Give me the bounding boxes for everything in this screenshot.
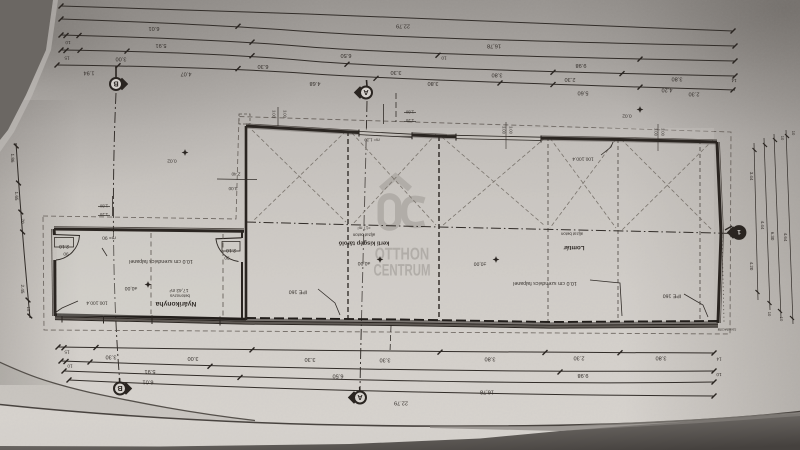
svg-text:kerti kisgép tároló: kerti kisgép tároló [338,240,389,247]
svg-text:10: 10 [67,364,73,369]
svg-text:10: 10 [767,312,772,317]
svg-text:15: 15 [64,350,70,355]
svg-text:4.20: 4.20 [749,262,754,271]
svg-text:1.20: 1.20 [99,212,108,217]
svg-text:3.80: 3.80 [656,355,667,361]
svg-text:1: 1 [737,228,741,235]
svg-text:100.100.4: 100.100.4 [572,156,594,162]
svg-text:2.40: 2.40 [231,172,240,177]
svg-text:Nyárikonyha: Nyárikonyha [155,300,196,307]
svg-text:2.10: 2.10 [59,243,69,249]
svg-text:6.50: 6.50 [333,373,344,379]
svg-text:A: A [363,88,368,97]
svg-text:10: 10 [791,131,796,136]
svg-text:IPE 160: IPE 160 [663,293,682,299]
svg-text:14: 14 [716,357,722,362]
svg-text:2.45: 2.45 [20,285,25,294]
svg-text:10: 10 [779,317,784,322]
svg-text:2.10: 2.10 [226,247,236,253]
svg-text:Lomtár: Lomtár [563,244,585,251]
svg-text:0.02: 0.02 [167,158,177,164]
svg-text:3.30: 3.30 [391,69,402,75]
svg-text:1.80: 1.80 [405,110,414,115]
svg-text:90: 90 [63,252,69,257]
svg-text:0.02: 0.02 [622,113,632,119]
svg-text:B: B [117,384,122,393]
svg-text:3.30: 3.30 [106,354,117,360]
svg-text:3.00: 3.00 [116,56,127,62]
svg-text:10: 10 [65,40,71,45]
svg-text:3.00: 3.00 [188,355,199,361]
svg-text:3.80: 3.80 [485,356,496,362]
svg-text:9.98: 9.98 [576,62,587,68]
svg-text:aljzat beton: aljzat beton [560,232,583,237]
svg-text:3.44: 3.44 [749,172,754,181]
svg-text:5.91: 5.91 [145,368,156,374]
svg-text:3.00: 3.00 [283,110,288,119]
svg-text:6.30: 6.30 [770,232,775,241]
svg-text:6.30: 6.30 [258,63,269,69]
svg-text:3.30: 3.30 [305,356,316,362]
svg-text:≈17 m²: ≈17 m² [357,226,371,231]
svg-text:3.00: 3.00 [272,110,277,119]
svg-text:1.94: 1.94 [84,70,95,76]
svg-text:22.79: 22.79 [396,23,410,29]
svg-text:5.60: 5.60 [578,90,589,96]
svg-text:14: 14 [731,78,737,83]
svg-text:10: 10 [441,56,447,61]
svg-text:100.100.4: 100.100.4 [86,300,108,306]
svg-text:16,78: 16,78 [480,389,494,395]
svg-text:10: 10 [716,372,722,377]
svg-text:±0,00: ±0,00 [474,261,487,267]
svg-text:aljzat beton: aljzat beton [352,233,375,238]
svg-text:4.20: 4.20 [662,87,673,93]
svg-text:10.0 cm szendvics falpanel: 10.0 cm szendvics falpanel [129,258,193,264]
svg-text:±0,00: ±0,00 [358,260,371,266]
svg-text:6.01: 6.01 [149,25,160,31]
svg-text:1.80: 1.80 [99,204,108,209]
svg-text:1.65: 1.65 [14,192,19,201]
svg-text:4.64: 4.64 [783,233,788,242]
svg-text:±0,00: ±0,00 [125,285,138,291]
svg-text:9.98: 9.98 [578,372,589,378]
svg-text:4.68: 4.68 [310,80,321,86]
svg-text:3.00: 3.00 [502,126,507,135]
svg-text:22.79: 22.79 [394,400,408,406]
svg-text:3.80: 3.80 [492,72,503,78]
svg-text:4.44: 4.44 [760,221,765,230]
svg-text:1.20: 1.20 [405,118,414,123]
svg-text:6.01: 6.01 [143,379,154,385]
svg-text:4.07: 4.07 [181,71,192,77]
svg-text:10.0 cm szendvics falpanel: 10.0 cm szendvics falpanel [513,280,577,286]
svg-text:3.30: 3.30 [380,357,391,363]
svg-text:3.00: 3.00 [661,128,666,137]
svg-text:6.50: 6.50 [341,52,352,58]
svg-text:3.80: 3.80 [428,80,439,86]
svg-text:3.00: 3.00 [228,186,237,191]
svg-text:17,43 m²: 17,43 m² [169,287,188,293]
svg-text:1.86: 1.86 [10,154,15,163]
svg-text:3.00: 3.00 [654,128,659,137]
svg-text:3.80: 3.80 [672,76,683,82]
svg-text:70: 70 [20,218,25,224]
svg-text:15: 15 [64,56,70,61]
svg-text:IPE 160: IPE 160 [289,289,308,295]
svg-text:szendvicsfal: szendvicsfal [718,328,737,332]
svg-text:16,78: 16,78 [487,43,501,49]
svg-text:m= 90: m= 90 [102,235,116,241]
svg-text:2.30: 2.30 [574,355,585,361]
svg-text:2.30: 2.30 [689,90,700,96]
svg-text:3.00: 3.00 [509,126,514,135]
svg-text:90: 90 [224,256,230,261]
svg-text:5.91: 5.91 [156,42,167,48]
svg-text:betonozva: betonozva [169,294,189,299]
svg-text:B: B [113,79,118,88]
svg-text:10: 10 [780,136,785,141]
svg-text:A: A [357,393,362,402]
svg-text:m= 1,20: m= 1,20 [364,138,380,143]
svg-text:15: 15 [26,307,31,312]
svg-text:2.30: 2.30 [565,76,576,82]
